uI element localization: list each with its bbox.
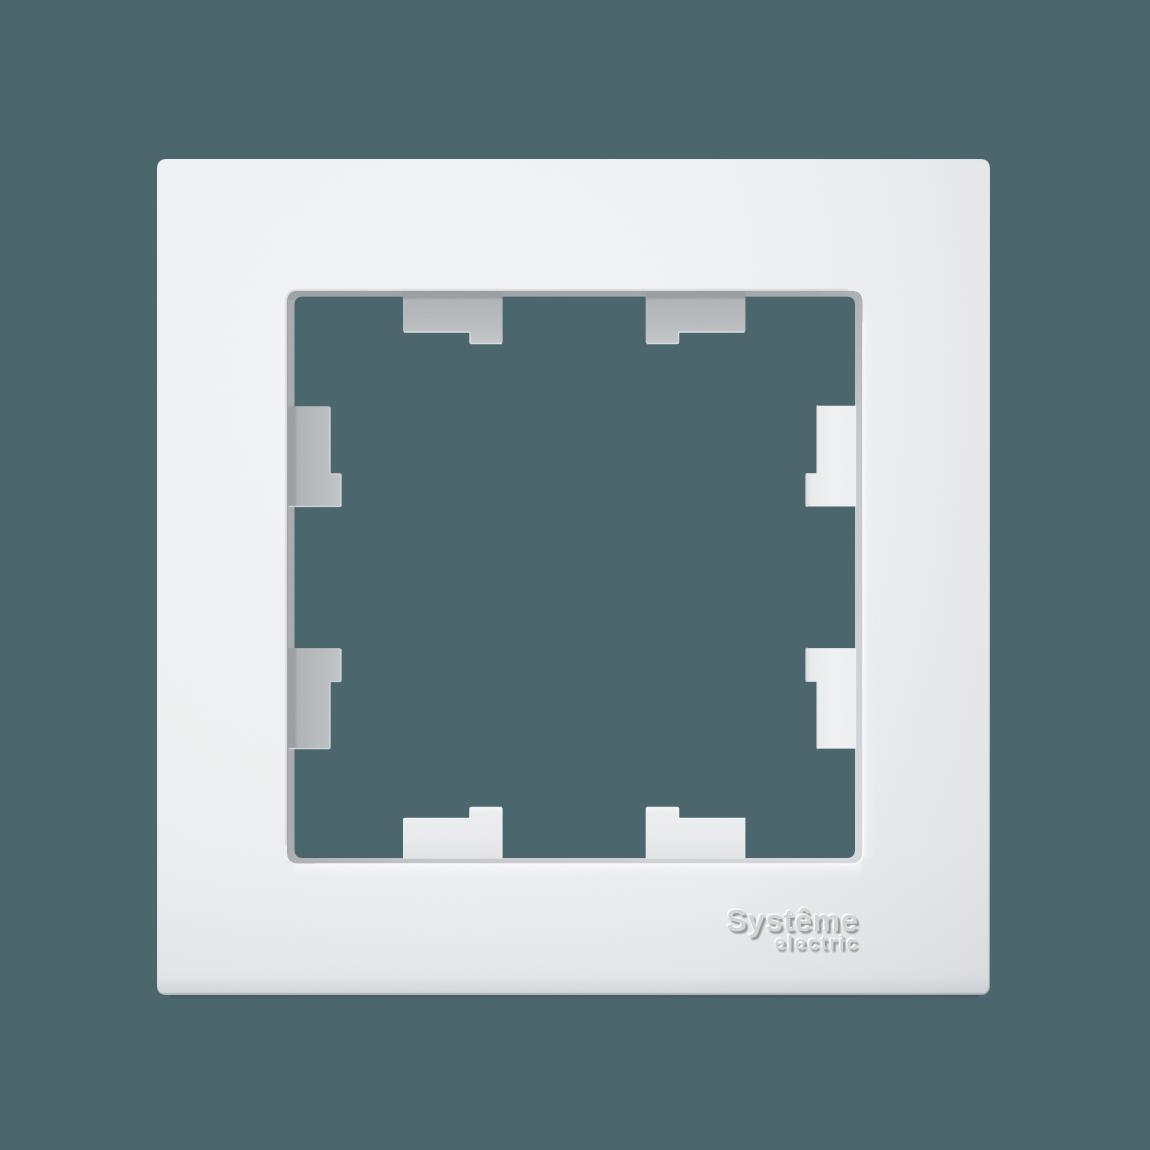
svg-text:electric: electric (775, 934, 860, 955)
